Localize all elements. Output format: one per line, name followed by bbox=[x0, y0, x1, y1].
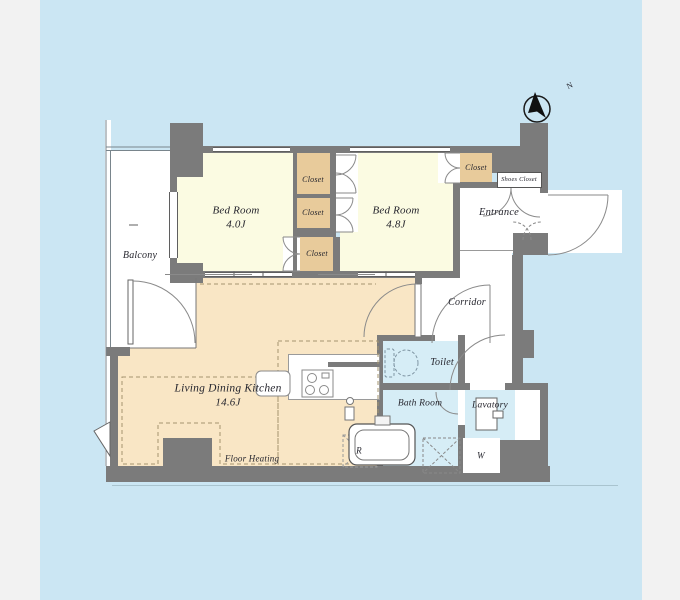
ldk-area-label: 14.6J bbox=[215, 398, 240, 409]
shoes-closet-label: Shoes Closet bbox=[501, 177, 537, 184]
wall bbox=[296, 228, 336, 237]
kitchen-counter bbox=[288, 354, 380, 400]
ldk-label: Living Dining Kitchen bbox=[174, 383, 281, 395]
washer-label: W bbox=[477, 452, 485, 461]
closet3-doorswing bbox=[283, 237, 300, 271]
wall bbox=[458, 341, 465, 383]
wall bbox=[377, 335, 435, 341]
wall bbox=[513, 233, 548, 255]
wall-pipe-shaft bbox=[163, 438, 212, 466]
closet1-label: Closet bbox=[302, 176, 324, 184]
bedroom2-sliding-door bbox=[358, 272, 415, 278]
entrance-label: Entrance bbox=[479, 208, 519, 219]
lavatory-vanity-zone bbox=[515, 390, 540, 440]
closet12-doorswing bbox=[336, 153, 358, 232]
balcony-door-zone bbox=[128, 278, 196, 348]
ldk-floor-upper bbox=[196, 278, 415, 335]
bedroom1-label: Bed Room bbox=[212, 206, 259, 217]
closet4-label: Closet bbox=[465, 164, 487, 172]
floor-heating-label: Floor Heating bbox=[225, 455, 279, 464]
floorplan-canvas: Balcony Bed Room 4.0J Bed Room 4.8J Clos… bbox=[40, 0, 642, 600]
bedroom1-side-window bbox=[169, 192, 178, 258]
wall bbox=[293, 153, 297, 278]
bedroom2-area-label: 4.8J bbox=[386, 220, 405, 231]
wall bbox=[505, 383, 548, 390]
balcony-label: Balcony bbox=[123, 251, 157, 261]
entrance-doorswing-outside bbox=[540, 190, 622, 253]
wall bbox=[523, 330, 534, 358]
closet2-label: Closet bbox=[302, 209, 324, 217]
wall bbox=[415, 278, 422, 284]
wall bbox=[453, 183, 460, 271]
bathroom-label: Bath Room bbox=[398, 399, 442, 409]
lavatory-floor bbox=[465, 390, 515, 440]
wall bbox=[330, 153, 336, 232]
refrigerator-label: R bbox=[356, 447, 362, 456]
wall bbox=[297, 194, 330, 198]
lavatory-label: Lavatory bbox=[472, 401, 508, 411]
corridor-label: Corridor bbox=[448, 298, 486, 308]
kitchen-half-wall bbox=[328, 362, 383, 367]
wall bbox=[512, 255, 523, 390]
bedroom2-window bbox=[350, 147, 450, 153]
closet1-floor bbox=[297, 153, 330, 194]
wall bbox=[520, 123, 548, 153]
wall bbox=[377, 383, 470, 390]
closet3-label: Closet bbox=[306, 250, 328, 258]
wall bbox=[460, 182, 500, 188]
wall bbox=[106, 347, 130, 356]
closet4-doorswing bbox=[438, 153, 460, 183]
bedroom2-label: Bed Room bbox=[372, 206, 419, 217]
corridor-floor-right bbox=[460, 253, 512, 390]
wall bbox=[492, 153, 540, 173]
toilet-label: Toilet bbox=[430, 358, 454, 368]
compass-icon bbox=[524, 92, 550, 122]
wall bbox=[110, 347, 118, 466]
bedroom1-sliding-door bbox=[205, 272, 292, 278]
compass-n-label: N bbox=[566, 81, 575, 91]
floorplan-screenshot: Balcony Bed Room 4.0J Bed Room 4.8J Clos… bbox=[0, 0, 680, 600]
bedroom1-area-label: 4.0J bbox=[226, 220, 245, 231]
bedroom1-window bbox=[213, 147, 290, 153]
